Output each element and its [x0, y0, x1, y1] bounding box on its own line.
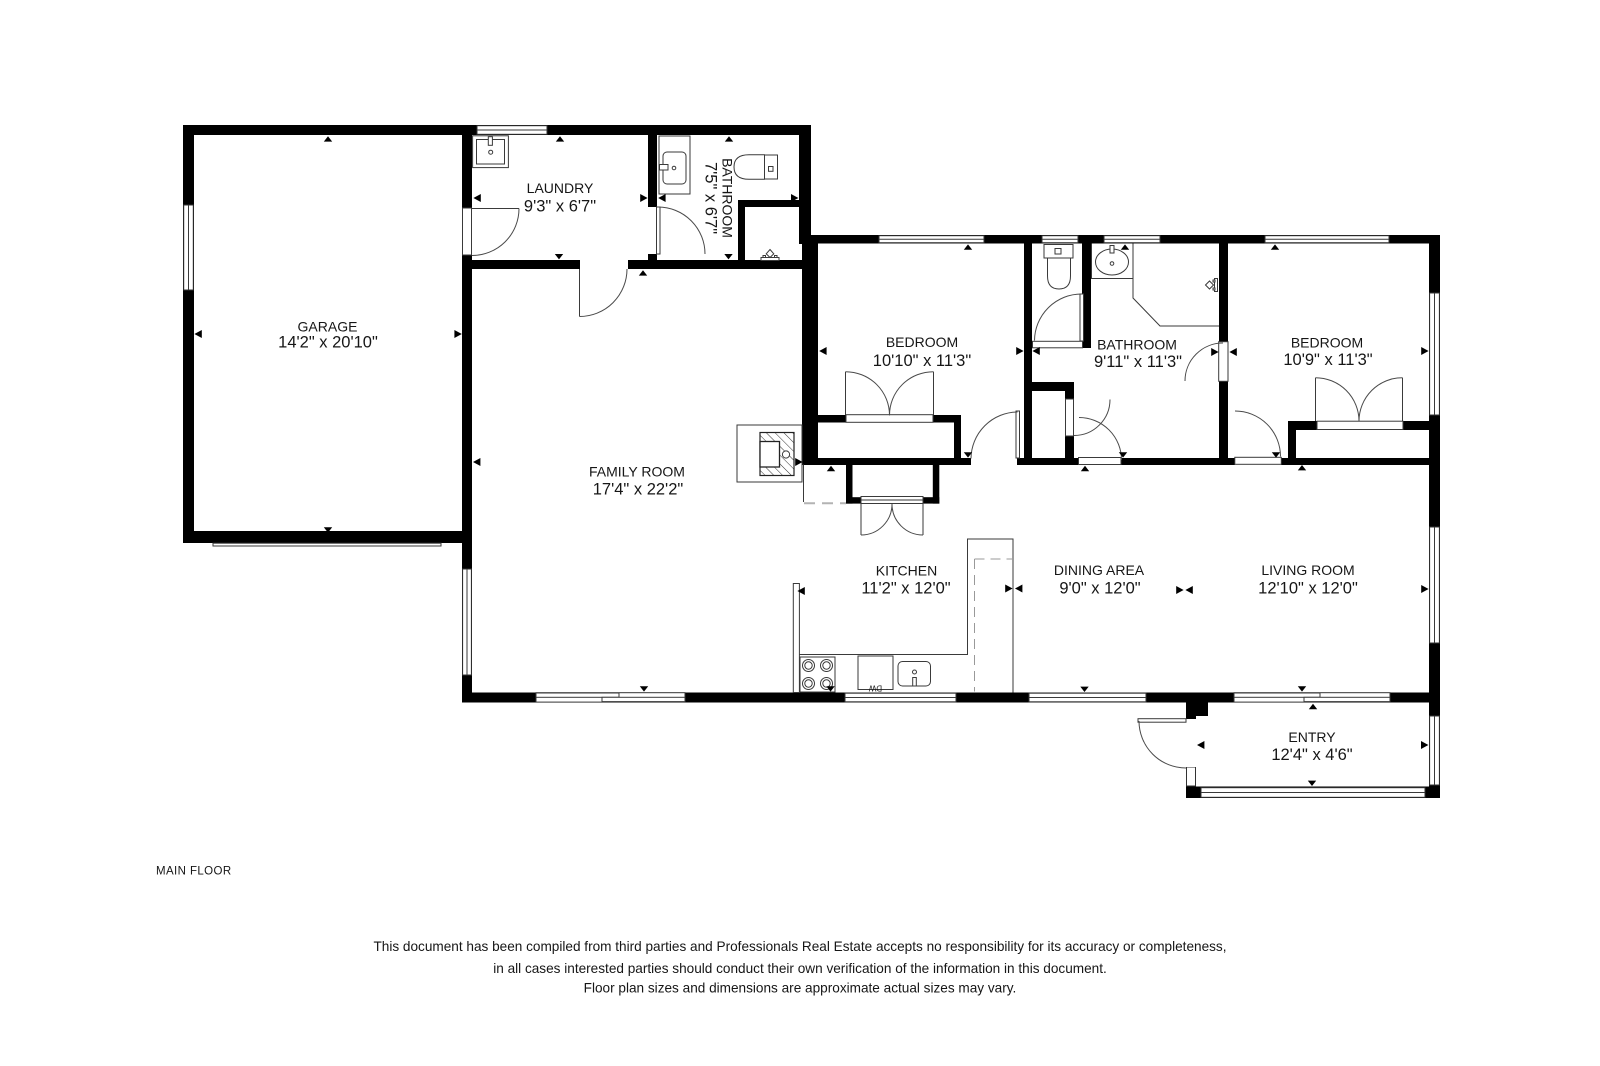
svg-text:KITCHEN: KITCHEN	[876, 563, 937, 579]
svg-text:9'3" x 6'7": 9'3" x 6'7"	[524, 198, 596, 216]
svg-text:10'10" x 11'3": 10'10" x 11'3"	[873, 352, 972, 370]
svg-text:DINING AREA: DINING AREA	[1054, 562, 1145, 578]
svg-text:17'4" x 22'2": 17'4" x 22'2"	[593, 481, 684, 499]
svg-text:ENTRY: ENTRY	[1288, 729, 1336, 745]
svg-text:This document has been compile: This document has been compiled from thi…	[373, 939, 1226, 954]
svg-text:9'11" x 11'3": 9'11" x 11'3"	[1094, 353, 1182, 371]
svg-text:DW: DW	[868, 684, 882, 693]
svg-text:FAMILY ROOM: FAMILY ROOM	[589, 464, 685, 480]
svg-text:MAIN FLOOR: MAIN FLOOR	[156, 866, 232, 878]
svg-text:10'9" x 11'3": 10'9" x 11'3"	[1283, 351, 1372, 369]
svg-text:9'0" x 12'0": 9'0" x 12'0"	[1059, 580, 1140, 598]
svg-text:12'4" x 4'6": 12'4" x 4'6"	[1271, 746, 1352, 764]
svg-text:BATHROOM: BATHROOM	[720, 158, 736, 238]
svg-text:BEDROOM: BEDROOM	[1291, 335, 1363, 351]
svg-text:GARAGE: GARAGE	[298, 319, 358, 335]
svg-text:LIVING ROOM: LIVING ROOM	[1261, 562, 1354, 578]
svg-text:in all cases interested partie: in all cases interested parties should c…	[493, 961, 1107, 976]
svg-text:12'10" x 12'0": 12'10" x 12'0"	[1258, 580, 1358, 598]
svg-text:14'2" x 20'10": 14'2" x 20'10"	[278, 334, 378, 352]
svg-text:BEDROOM: BEDROOM	[886, 334, 958, 350]
svg-text:11'2" x 12'0": 11'2" x 12'0"	[861, 580, 950, 598]
svg-text:Floor plan sizes and dimension: Floor plan sizes and dimensions are appr…	[584, 981, 1017, 996]
svg-text:7'5" x 6'7": 7'5" x 6'7"	[702, 162, 720, 234]
svg-text:LAUNDRY: LAUNDRY	[527, 180, 594, 196]
svg-text:BATHROOM: BATHROOM	[1097, 337, 1177, 353]
